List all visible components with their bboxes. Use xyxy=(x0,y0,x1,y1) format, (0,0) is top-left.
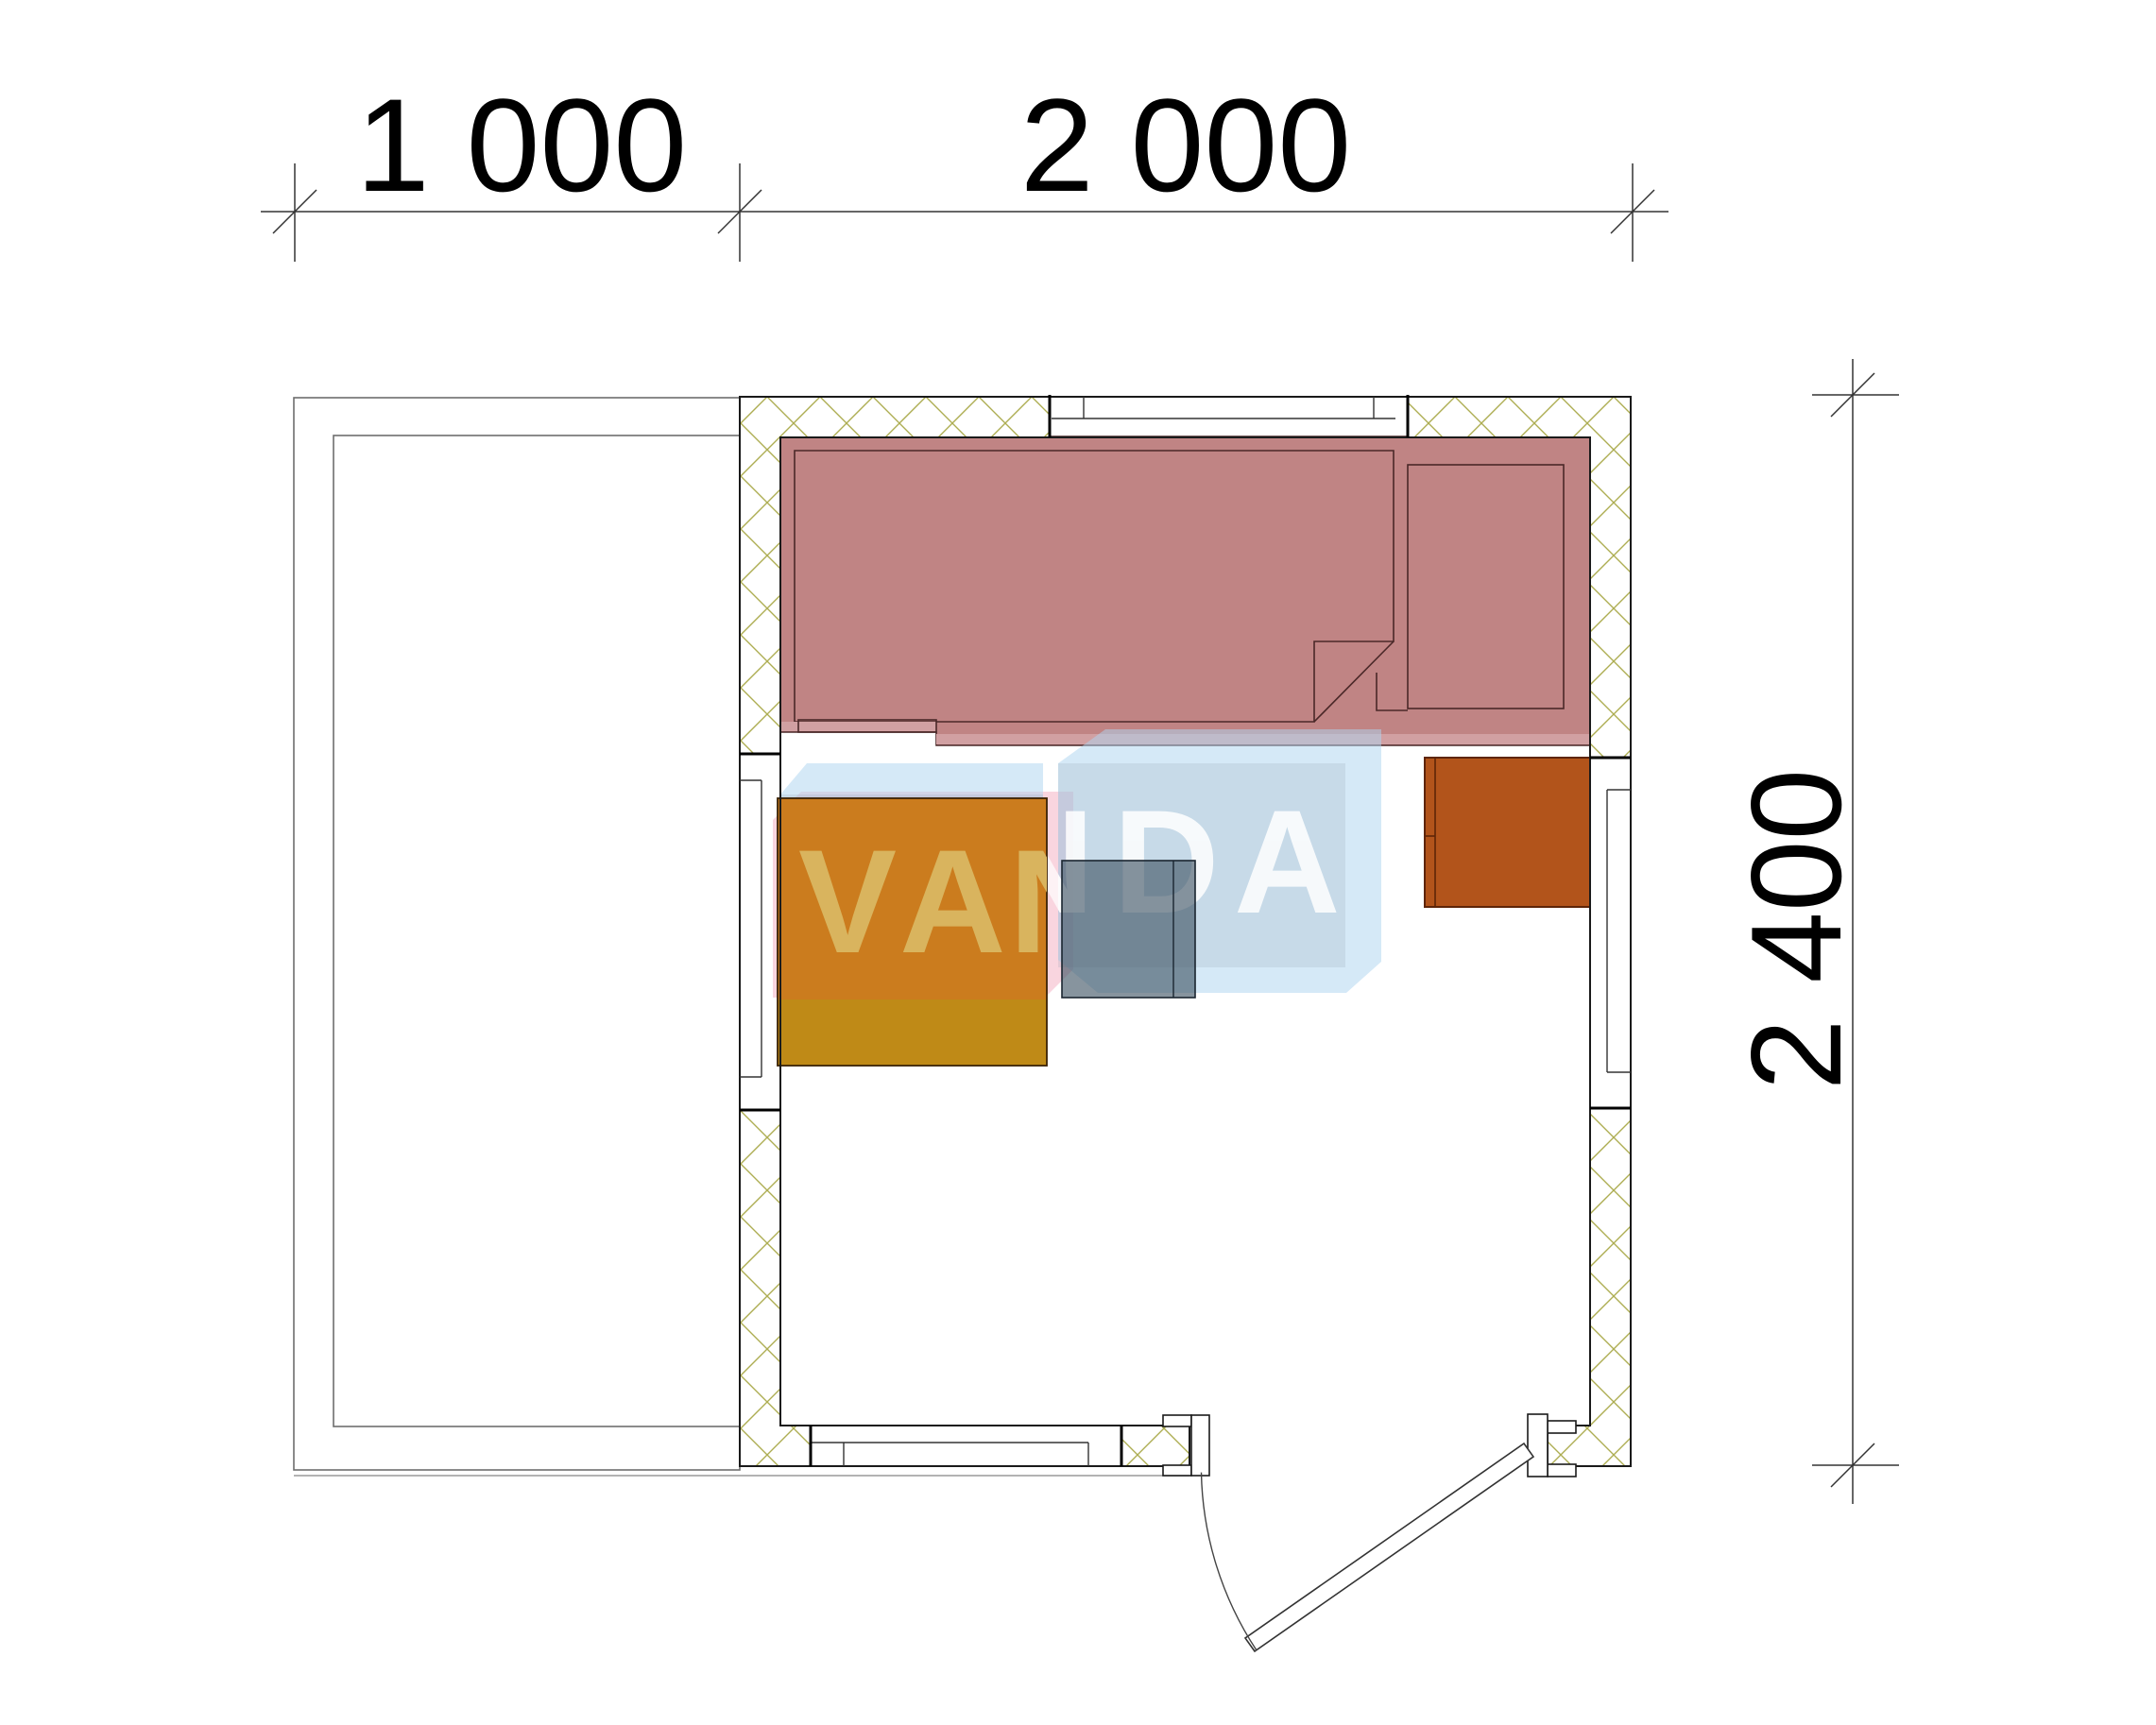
svg-text:2 000: 2 000 xyxy=(1020,71,1351,219)
svg-text:A: A xyxy=(1234,780,1341,945)
svg-text:2 400: 2 400 xyxy=(1724,769,1868,1090)
svg-text:1 000: 1 000 xyxy=(356,71,687,219)
svg-text:V: V xyxy=(798,820,897,984)
svg-text:A: A xyxy=(899,820,1006,984)
